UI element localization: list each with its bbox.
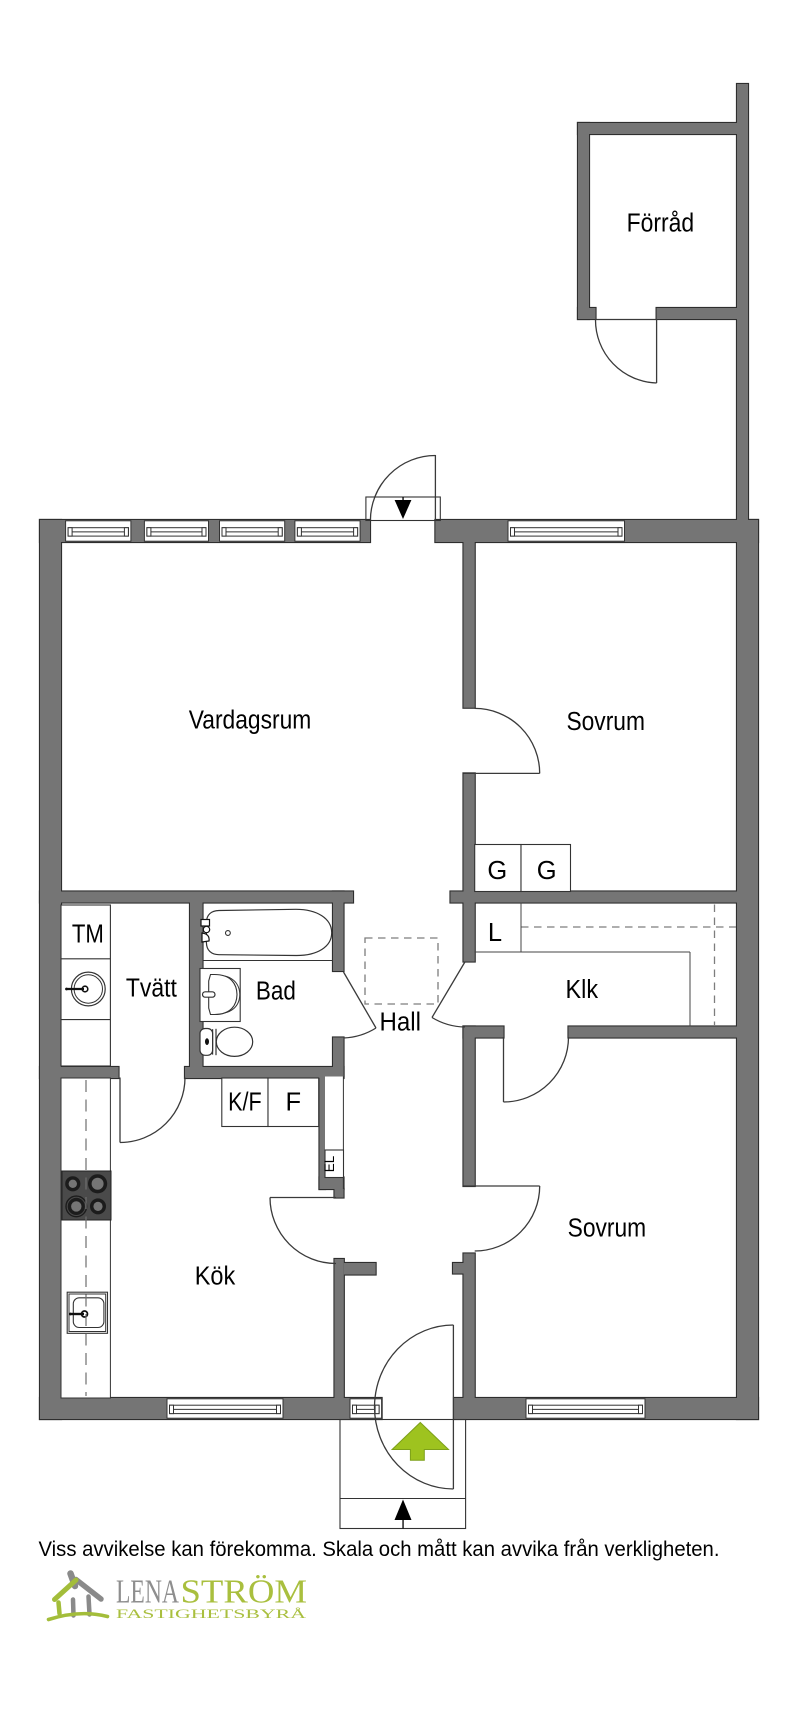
svg-text:Hall: Hall <box>379 1009 421 1037</box>
svg-text:Kök: Kök <box>195 1263 236 1291</box>
svg-text:Förråd: Förråd <box>627 210 695 238</box>
svg-text:K/F: K/F <box>228 1089 262 1117</box>
svg-text:Tvätt: Tvätt <box>126 975 177 1003</box>
svg-text:Sovrum: Sovrum <box>568 1215 647 1243</box>
svg-text:LENA: LENA <box>116 1574 179 1611</box>
svg-text:G: G <box>537 857 557 885</box>
svg-text:EL: EL <box>322 1155 337 1172</box>
svg-text:TM: TM <box>72 921 104 949</box>
svg-text:STRÖM: STRÖM <box>181 1574 308 1611</box>
svg-text:Vardagsrum: Vardagsrum <box>189 707 312 735</box>
svg-text:FASTIGHETSBYRÅ: FASTIGHETSBYRÅ <box>116 1607 306 1621</box>
svg-text:G: G <box>487 857 507 885</box>
svg-text:Bad: Bad <box>256 978 296 1006</box>
svg-text:Viss avvikelse kan förekomma.: Viss avvikelse kan förekomma. Skala och … <box>39 1538 720 1561</box>
svg-text:L: L <box>488 919 502 947</box>
svg-text:F: F <box>286 1089 302 1117</box>
svg-text:Klk: Klk <box>566 976 599 1004</box>
svg-text:Sovrum: Sovrum <box>566 708 645 736</box>
